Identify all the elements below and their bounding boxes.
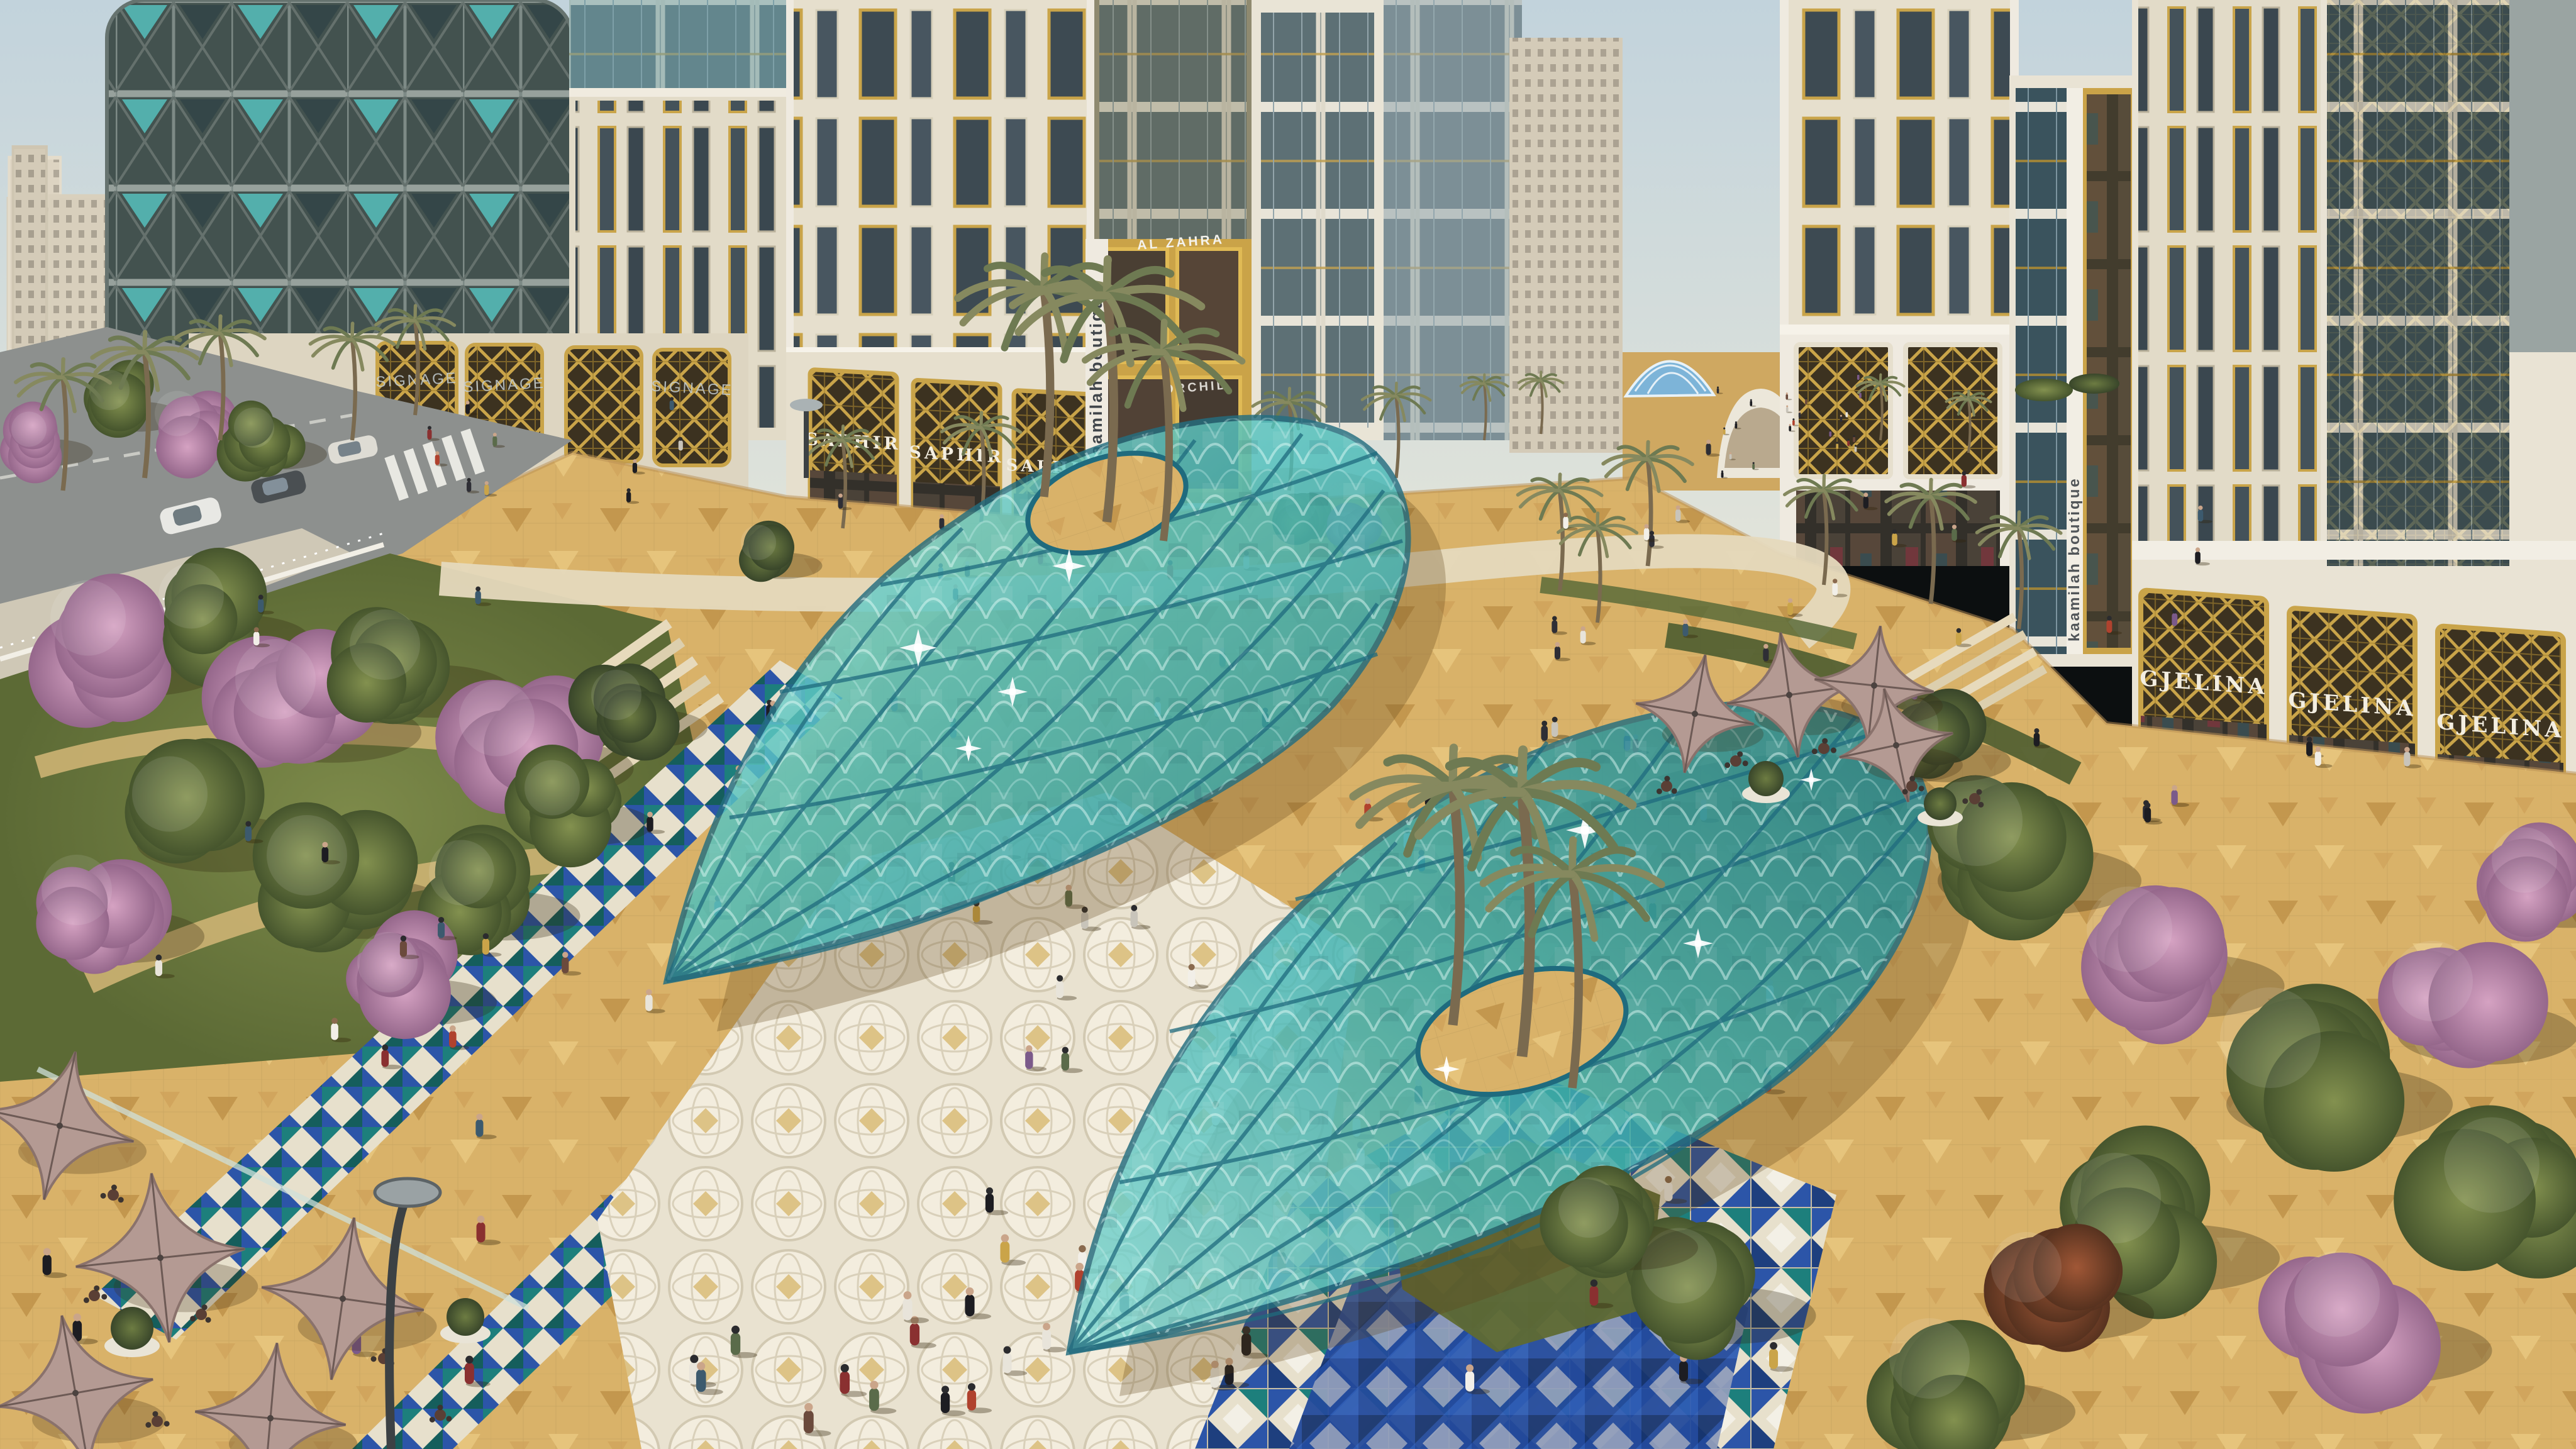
kaamilah-sign-2: kaamilah boutique [2066, 477, 2083, 641]
tower-white-gold [1780, 0, 2019, 566]
building-kaamilah-2: kaamilah boutique [2009, 75, 2145, 667]
building-gjelina: GJELINA GJELINA GJELINA [2132, 0, 2576, 838]
plaza-rendering-stage: SIGNAGE SIGNAGE SIGNAGE SAPHIR SAPHIR SA… [0, 0, 2576, 1449]
rendering-viewport: SIGNAGE SIGNAGE SIGNAGE SAPHIR SAPHIR SA… [0, 0, 2576, 1449]
